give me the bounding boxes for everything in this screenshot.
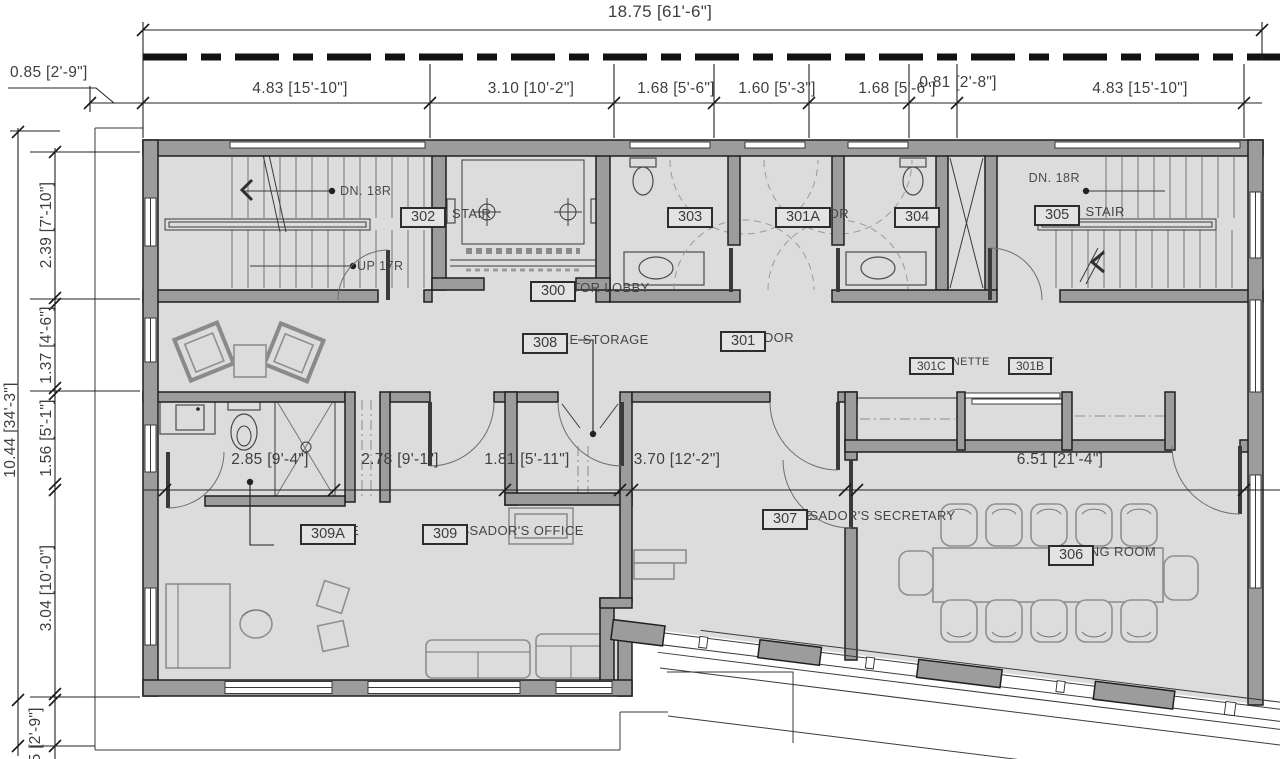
room-number: 301A [775, 207, 831, 228]
room-number: 301 [720, 331, 766, 352]
dim-mid-3: 1.81 [5'-11"] [484, 451, 569, 469]
dim-mid-4: 3.70 [12'-2"] [634, 451, 720, 469]
north-stair-up-note: UP 17R [357, 259, 404, 273]
dim-left-bottom-offset: 0.85 [2'-9"] [27, 707, 45, 759]
dim-left-3: 1.56 [5'-1"] [38, 399, 56, 477]
dim-top-2: 3.10 [10'-2"] [488, 80, 574, 98]
floor-plan-drawing [0, 0, 1280, 759]
room-number: 306 [1048, 545, 1094, 566]
meeting-room-furniture [899, 504, 1198, 642]
room-number: 303 [667, 207, 713, 228]
floor-plan-canvas: 18.75 [61'-6"] 0.85 [2'-9"] 4.83 [15'-10… [0, 0, 1280, 759]
room-number: 304 [894, 207, 940, 228]
dim-top-left-offset: 0.85 [2'-9"] [10, 64, 88, 82]
dim-top-1: 4.83 [15'-10"] [252, 80, 347, 98]
room-number: 309 [422, 524, 468, 545]
dim-mid-5: 6.51 [21'-4"] [1017, 451, 1103, 469]
room-number: 301B [1008, 357, 1052, 375]
south-stair-dn-note: DN. 18R [1029, 171, 1080, 185]
room-number: 305 [1034, 205, 1080, 226]
dim-left-2: 1.37 [4'-6"] [38, 306, 56, 384]
dim-mid-2: 2.78 [9'-1"] [361, 451, 439, 469]
dim-top-4: 1.60 [5'-3"] [738, 80, 816, 98]
room-number: 300 [530, 281, 576, 302]
room-number: 307 [762, 509, 808, 530]
dim-left-4: 3.04 [10'-0"] [38, 545, 56, 631]
dim-overall-width: 18.75 [61'-6"] [608, 2, 712, 22]
room-number: 308 [522, 333, 568, 354]
dim-overall-height: 10.44 [34'-3"] [2, 382, 20, 477]
dim-top-3: 1.68 [5'-6"] [637, 80, 715, 98]
dim-mid-1: 2.85 [9'-4"] [231, 451, 309, 469]
dim-left-1: 2.39 [7'-10"] [38, 182, 56, 268]
north-stair-dn-note: DN. 18R [340, 184, 391, 198]
dim-top-7: 4.83 [15'-10"] [1092, 80, 1187, 98]
room-number: 309A [300, 524, 356, 545]
room-number: 301C [909, 357, 954, 375]
dim-top-6: 0.81 [2'-8"] [919, 74, 997, 92]
room-number: 302 [400, 207, 446, 228]
